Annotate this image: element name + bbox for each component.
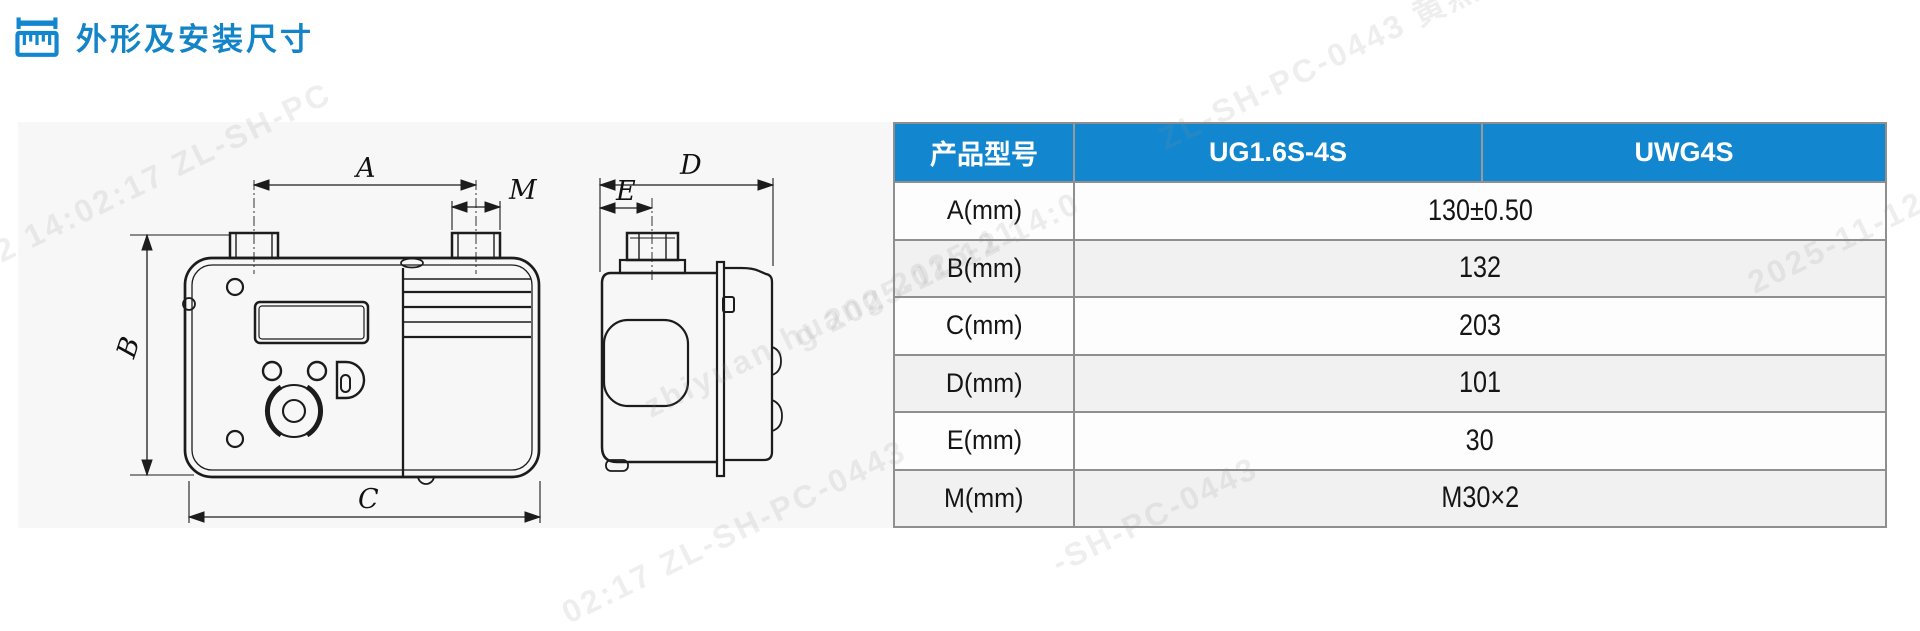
row-label: A(mm): [895, 183, 1075, 239]
row-value: 30: [1075, 413, 1885, 469]
row-value: 132: [1075, 241, 1885, 297]
dim-label-B: B: [111, 333, 147, 362]
row-label: E(mm): [895, 413, 1075, 469]
spec-table-header: 产品型号 UG1.6S-4S UWG4S: [895, 124, 1885, 181]
table-row-D: D(mm) 101: [895, 354, 1885, 412]
meter-side-view: D E: [600, 150, 782, 476]
row-value: 130±0.50: [1075, 183, 1885, 239]
table-row-E: E(mm) 30: [895, 411, 1885, 469]
column-header-ug16s4s: UG1.6S-4S: [1075, 124, 1483, 181]
row-label: M(mm): [895, 471, 1075, 527]
table-row-C: C(mm) 203: [895, 296, 1885, 354]
dimension-drawings: A M B C: [18, 122, 893, 528]
ruler-icon: [14, 16, 60, 58]
column-header-model: 产品型号: [895, 124, 1075, 181]
row-label: C(mm): [895, 298, 1075, 354]
row-value: M30×2: [1075, 471, 1885, 527]
content-panel: A M B C: [18, 122, 1887, 528]
page-title: 外形及安装尺寸: [76, 14, 314, 59]
table-row-M: M(mm) M30×2: [895, 469, 1885, 527]
dim-label-E: E: [615, 176, 636, 207]
row-value: 101: [1075, 356, 1885, 412]
column-header-uwg4s: UWG4S: [1483, 124, 1885, 181]
row-label: B(mm): [895, 241, 1075, 297]
table-row-A: A(mm) 130±0.50: [895, 181, 1885, 239]
dim-label-M: M: [508, 175, 538, 206]
section-header: 外形及安装尺寸: [14, 14, 314, 59]
meter-front-view: A M B C: [111, 153, 540, 523]
dim-label-D: D: [679, 150, 702, 181]
row-value: 203: [1075, 298, 1885, 354]
dim-label-C: C: [358, 484, 379, 515]
dim-label-A: A: [353, 153, 376, 184]
row-label: D(mm): [895, 356, 1075, 412]
spec-table: 产品型号 UG1.6S-4S UWG4S A(mm) 130±0.50 B(mm…: [893, 122, 1887, 528]
table-row-B: B(mm) 132: [895, 239, 1885, 297]
